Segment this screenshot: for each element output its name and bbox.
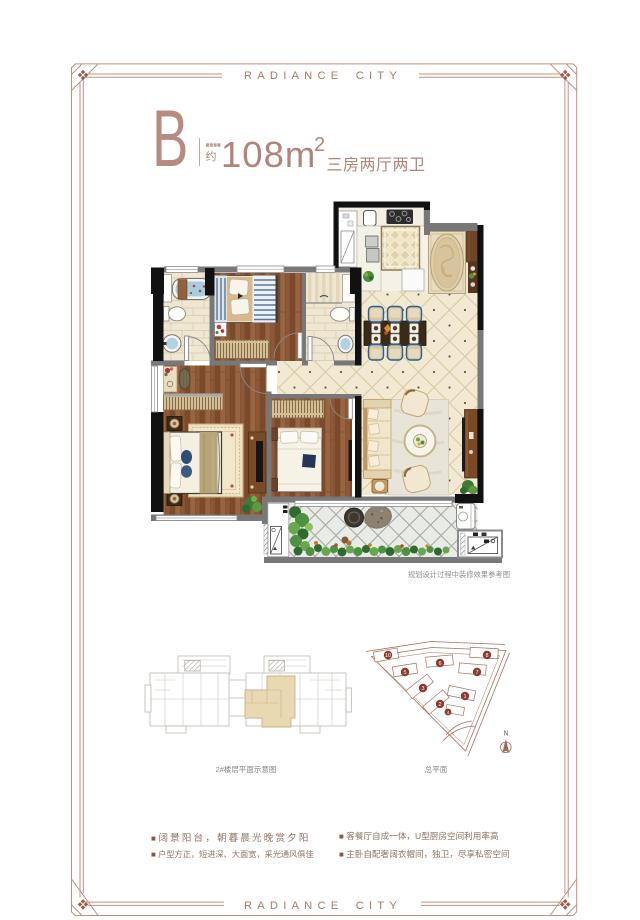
svg-text:N: N [503,730,508,737]
svg-text:2: 2 [438,702,441,708]
svg-text:10: 10 [385,653,391,659]
svg-text:6: 6 [438,661,441,667]
svg-text:5: 5 [403,670,406,676]
svg-text:7: 7 [475,670,478,676]
svg-text:1: 1 [463,694,466,700]
svg-text:8: 8 [485,653,488,659]
svg-text:3: 3 [421,686,424,692]
